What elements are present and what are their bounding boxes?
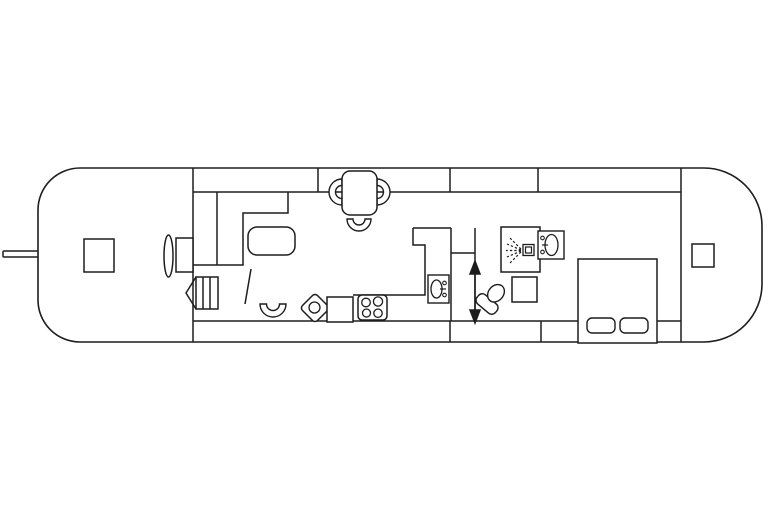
stove <box>358 295 387 320</box>
galley-diamond-knob <box>309 302 320 313</box>
coffee-table <box>248 227 295 255</box>
bedroom-washbasin-tap-1 <box>541 236 545 240</box>
stern-deck-hatch <box>692 244 714 267</box>
floor-plan-canvas <box>0 0 768 512</box>
stove-burner-3 <box>363 309 371 317</box>
washbasin-tap-2 <box>443 293 447 297</box>
stove-burner-2 <box>373 297 382 306</box>
bow-step-box <box>176 238 193 272</box>
tiller-bar <box>3 251 40 257</box>
galley-square-unit <box>327 297 353 322</box>
boat-floor-plan <box>0 0 768 512</box>
stove-burner-1 <box>362 298 371 307</box>
stairs-box <box>196 277 218 309</box>
bathroom-cabinet <box>512 277 537 302</box>
shower-head-inner <box>526 247 532 253</box>
bed-pillow-2 <box>620 318 648 333</box>
bow-door-ellipse <box>164 235 173 277</box>
bow-deck-hatch <box>84 239 114 272</box>
dining-table <box>342 171 377 215</box>
washbasin-tap-1 <box>443 281 447 285</box>
stove-burner-4 <box>374 309 382 317</box>
bedroom-washbasin-tap-2 <box>541 250 545 254</box>
bed-pillow-1 <box>587 318 615 333</box>
